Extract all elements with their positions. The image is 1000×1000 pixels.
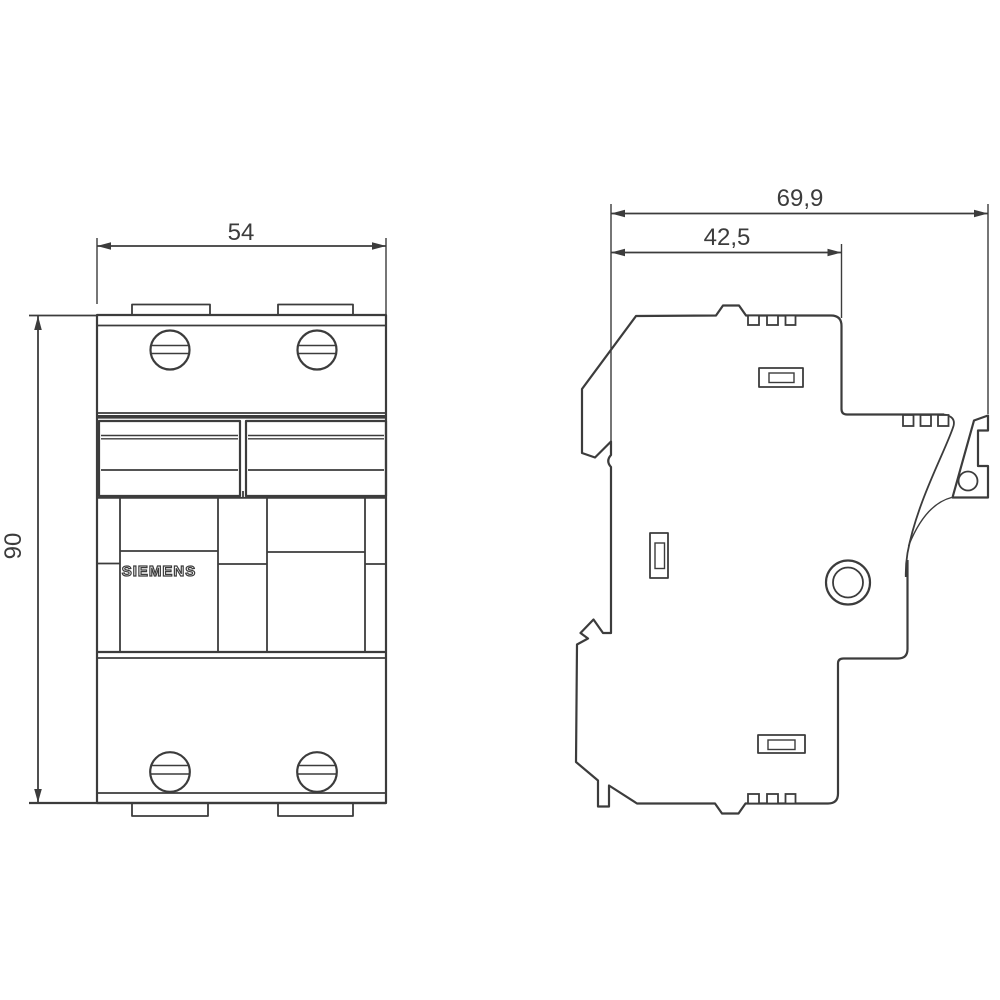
front-label-band bbox=[97, 413, 386, 498]
arrowhead-left bbox=[611, 249, 625, 257]
dimension-drawing: SIEMENS 54 bbox=[0, 0, 1000, 1000]
dim-label-width: 54 bbox=[228, 219, 255, 246]
front-view: SIEMENS 54 bbox=[0, 219, 386, 816]
arrowhead-right bbox=[372, 242, 386, 250]
arrowhead-up bbox=[34, 316, 42, 330]
dim-label-height: 90 bbox=[0, 533, 27, 560]
dim-front-height: 90 bbox=[0, 316, 42, 803]
siemens-logo-text: SIEMENS bbox=[122, 563, 197, 580]
side-vent-teeth-bottom bbox=[748, 794, 796, 804]
screw-top-left bbox=[151, 331, 190, 370]
dim-label-depth-rail: 42,5 bbox=[704, 224, 751, 251]
fastener-hole bbox=[959, 472, 978, 491]
arrowhead-left bbox=[97, 242, 111, 250]
technical-drawing-canvas: SIEMENS 54 bbox=[0, 0, 1000, 1000]
side-center-boss bbox=[826, 561, 870, 605]
dim-front-width: 54 bbox=[97, 219, 386, 314]
side-slot-vertical bbox=[650, 533, 668, 578]
front-bottom-tabs bbox=[132, 803, 353, 816]
side-slot-upper bbox=[759, 368, 803, 387]
dim-side-depth-total: 69,9 bbox=[611, 185, 988, 452]
arrowhead-left bbox=[611, 210, 625, 218]
side-body-outline bbox=[576, 306, 944, 814]
side-view: 69,9 42,5 bbox=[576, 185, 988, 814]
din-latch-spring bbox=[906, 415, 954, 578]
front-mid-section: SIEMENS bbox=[97, 497, 386, 658]
arrowhead-right bbox=[974, 210, 988, 218]
dim-side-depth-rail: 42,5 bbox=[611, 224, 842, 318]
dim-label-depth-total: 69,9 bbox=[777, 185, 824, 212]
screw-top-right bbox=[298, 331, 337, 370]
side-vent-teeth-top bbox=[748, 316, 796, 326]
front-body-outline bbox=[97, 315, 386, 803]
front-top-tabs bbox=[132, 305, 353, 316]
screw-bottom-left bbox=[150, 752, 190, 792]
din-fastener-bracket bbox=[953, 416, 989, 498]
side-vent-teeth-mid bbox=[903, 415, 949, 426]
arrowhead-right bbox=[828, 249, 842, 257]
screw-bottom-right bbox=[297, 752, 337, 792]
arrowhead-down bbox=[34, 789, 42, 803]
side-slot-lower bbox=[758, 735, 805, 753]
